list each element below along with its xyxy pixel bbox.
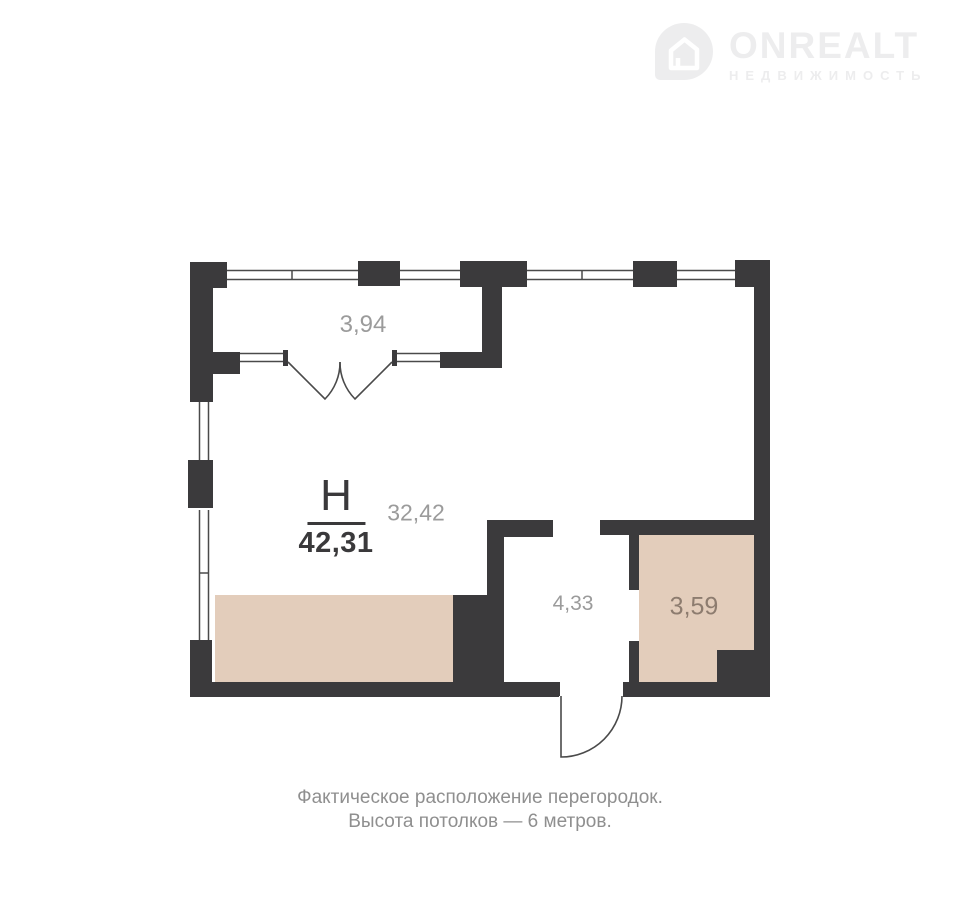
wall-segment <box>717 650 754 683</box>
caption-line-1: Фактическое расположение перегородок. <box>297 786 663 810</box>
plan-caption: Фактическое расположение перегородок. Вы… <box>297 786 663 833</box>
wall-segment <box>735 260 770 287</box>
unit-letter: Н <box>320 474 352 518</box>
wall-segment <box>633 261 677 287</box>
total-area-label: 42,31 <box>298 528 373 558</box>
wall-segment <box>460 261 527 287</box>
window <box>240 354 283 362</box>
window <box>400 271 460 280</box>
main-room-area-label: 32,42 <box>387 500 445 527</box>
wall-segment <box>487 520 553 537</box>
wall-segment <box>213 352 240 374</box>
doors <box>288 362 622 757</box>
caption-line-2: Высота потолков — 6 метров. <box>297 810 663 834</box>
balcony-door-swing <box>288 362 340 399</box>
wall-segment <box>190 262 213 402</box>
window <box>200 402 209 460</box>
unit-label-block: Н 42,31 <box>298 474 373 558</box>
floor-plan-drawing <box>0 0 960 910</box>
loggia-zone-fill <box>215 595 453 682</box>
wall-segment <box>600 520 757 535</box>
wall-segment <box>629 535 639 590</box>
balcony-area-label: 3,94 <box>340 311 387 339</box>
door-frame <box>392 350 397 366</box>
window <box>200 510 209 640</box>
door-frame <box>283 350 288 366</box>
wall-segment <box>190 682 559 697</box>
balcony-door-swing <box>340 362 392 399</box>
wall-segment <box>358 261 400 286</box>
door-frame <box>553 682 560 696</box>
wall-segment <box>440 352 502 368</box>
floor-plan-page: ONREALT НЕДВИЖИМОСТЬ <box>0 0 960 910</box>
window <box>527 271 633 280</box>
wall-segment <box>754 262 770 697</box>
window <box>227 271 358 280</box>
wall-segment <box>188 460 213 508</box>
storage-area-label: 3,59 <box>670 593 719 622</box>
wall-segment <box>453 595 504 683</box>
window <box>397 354 440 362</box>
wall-segment <box>629 641 639 683</box>
entrance-door-swing <box>561 696 622 757</box>
wall-segment <box>623 682 770 697</box>
window <box>677 271 735 280</box>
hall-area-label: 4,33 <box>553 592 594 616</box>
unit-divider-line <box>307 522 365 525</box>
